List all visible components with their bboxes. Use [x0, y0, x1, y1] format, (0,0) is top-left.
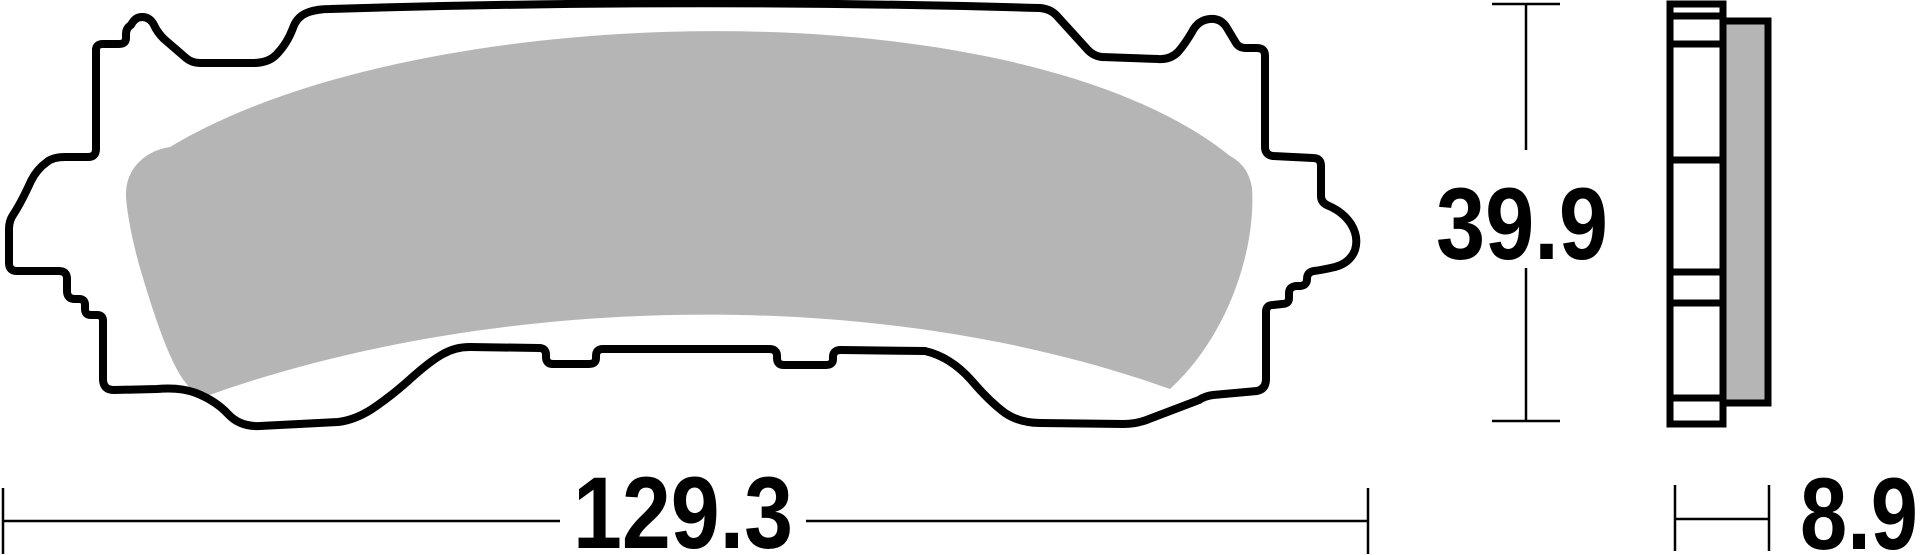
drawing-canvas: 39.9 129.3 8.9	[0, 0, 1920, 555]
dimension-height: 39.9	[1436, 4, 1608, 421]
backing-plate-side	[1670, 4, 1723, 424]
friction-material-side	[1723, 21, 1768, 403]
dim-height-label: 39.9	[1436, 167, 1608, 281]
dimension-width: 129.3	[3, 456, 1368, 555]
brake-pad-technical-drawing: 39.9 129.3 8.9	[0, 0, 1920, 555]
dimension-thickness: 8.9	[1675, 457, 1918, 555]
brake-pad-side-view	[1667, 4, 1768, 424]
dim-thickness-label: 8.9	[1800, 457, 1918, 555]
brake-pad-front-view	[9, 3, 1356, 426]
dim-width-label: 129.3	[573, 456, 793, 555]
